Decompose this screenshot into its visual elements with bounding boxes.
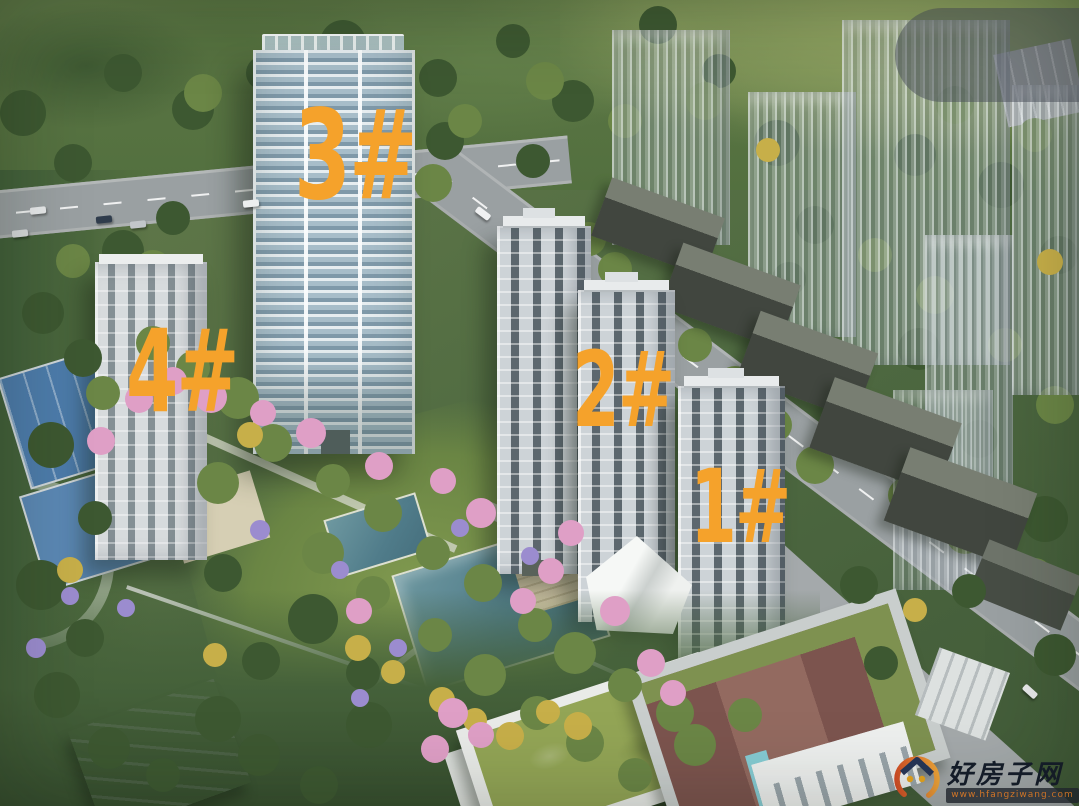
watermark-site-name: 好房子网 (947, 754, 1079, 791)
photo-overlay-shape (895, 8, 1079, 102)
house-logo-icon (889, 748, 945, 804)
watermark: 好房子网 www.hfangziwang.com (889, 748, 1079, 806)
watermark-url: www.hfangziwang.com (946, 788, 1079, 803)
aerial-render-scene: 3# 4# 2# 1# 好房子网 www.hfangziwang.com (0, 0, 1079, 806)
building-label-4: 4# (126, 328, 237, 417)
building-label-2: 2# (572, 350, 673, 431)
car (1022, 684, 1039, 700)
ghost-tower (1012, 85, 1079, 395)
building-label-3: 3# (294, 108, 416, 205)
building-label-1: 1# (690, 468, 789, 548)
tower-entrance (522, 560, 562, 576)
